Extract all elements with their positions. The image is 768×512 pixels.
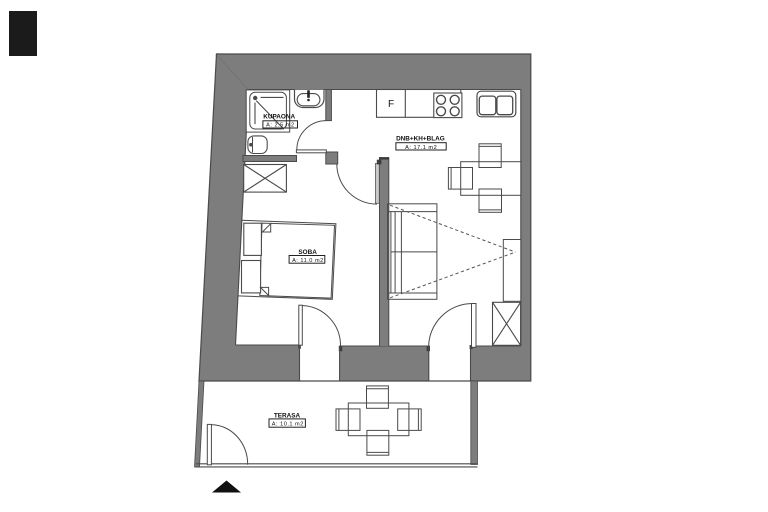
svg-text:A: 2.5 m2: A: 2.5 m2 — [266, 123, 294, 129]
svg-text:A: 17.1 m2: A: 17.1 m2 — [405, 145, 437, 151]
svg-text:KUPAONA: KUPAONA — [263, 113, 295, 120]
svg-text:F: F — [388, 99, 394, 110]
svg-text:A: 11.0 m2: A: 11.0 m2 — [292, 258, 324, 264]
svg-text:A: 10.1 m2: A: 10.1 m2 — [272, 421, 304, 427]
svg-text:DNB+KH+BLAG: DNB+KH+BLAG — [396, 135, 445, 142]
